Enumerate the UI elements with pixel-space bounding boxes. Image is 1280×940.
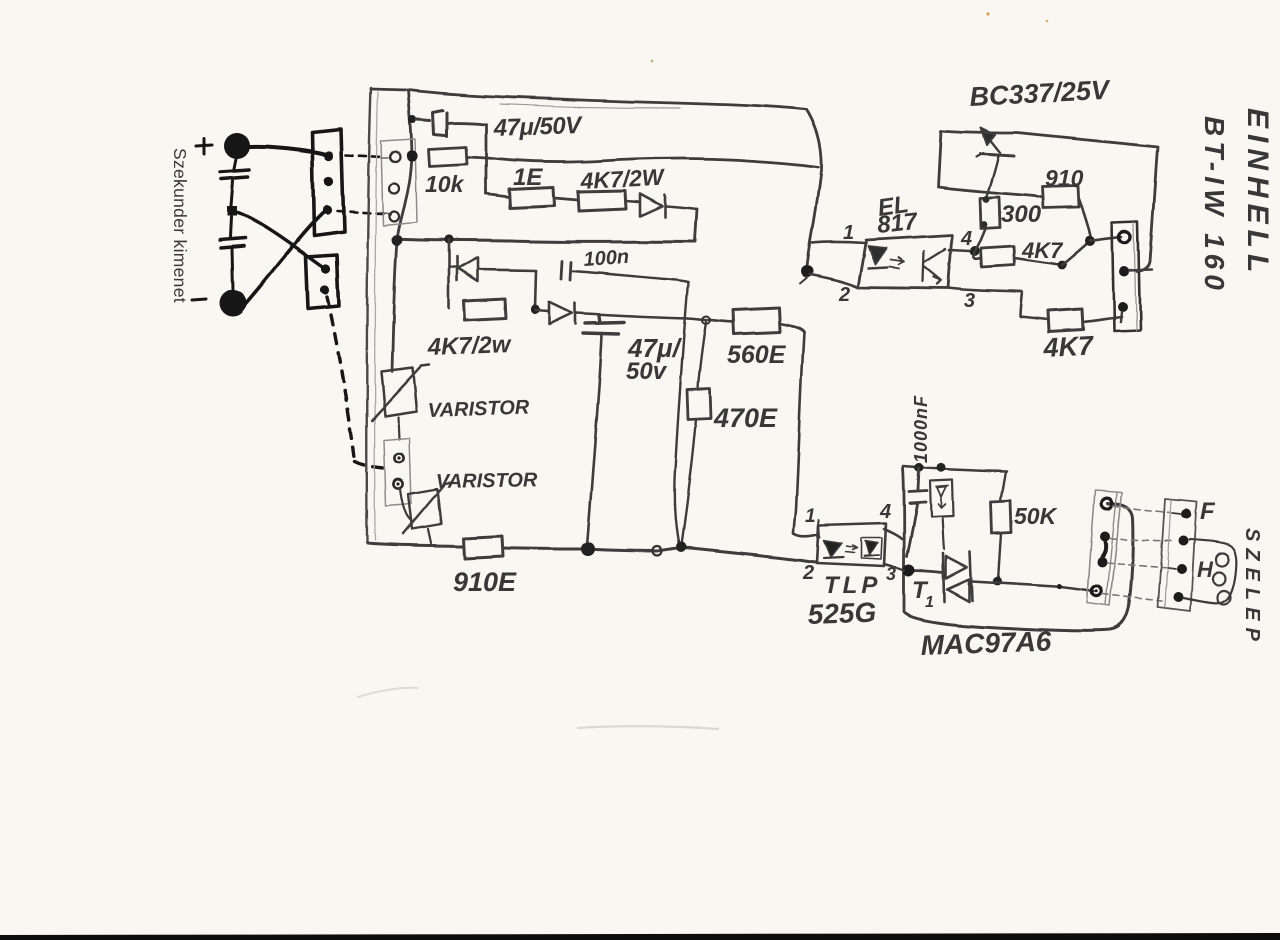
svg-text:4: 4 xyxy=(960,228,972,250)
svg-text:817: 817 xyxy=(876,208,920,239)
svg-text:910: 910 xyxy=(1045,165,1084,191)
svg-text:Szekunder kimenet: Szekunder kimenet xyxy=(170,148,190,303)
svg-text:100n: 100n xyxy=(583,246,630,271)
svg-text:1: 1 xyxy=(805,506,816,527)
svg-text:2: 2 xyxy=(802,562,814,584)
svg-text:EINHELL: EINHELL xyxy=(1241,108,1274,278)
svg-text:H: H xyxy=(1197,557,1214,582)
svg-text:4: 4 xyxy=(879,501,891,523)
svg-text:10k: 10k xyxy=(425,171,465,197)
svg-text:TLP: TLP xyxy=(824,572,881,599)
svg-text:SZELEP: SZELEP xyxy=(1241,528,1263,648)
svg-text:1000nF: 1000nF xyxy=(911,395,931,463)
svg-text:4K7/2w: 4K7/2w xyxy=(426,331,512,361)
svg-text:BT-IW 160: BT-IW 160 xyxy=(1199,116,1230,295)
svg-text:47μ/50V: 47μ/50V xyxy=(492,112,583,142)
svg-text:300: 300 xyxy=(1001,201,1042,228)
svg-text:1: 1 xyxy=(843,222,854,244)
svg-text:910E: 910E xyxy=(453,567,517,597)
svg-text:VARISTOR: VARISTOR xyxy=(436,469,538,493)
svg-text:4K7/2W: 4K7/2W xyxy=(579,164,667,194)
svg-text:MAC97A6: MAC97A6 xyxy=(920,625,1052,661)
svg-text:4K7: 4K7 xyxy=(1021,238,1064,263)
svg-text:4K7: 4K7 xyxy=(1042,330,1096,363)
svg-text:1: 1 xyxy=(925,594,934,611)
svg-text:3: 3 xyxy=(886,564,896,584)
svg-text:VARISTOR: VARISTOR xyxy=(427,396,530,422)
svg-text:560E: 560E xyxy=(727,341,787,369)
svg-text:50K: 50K xyxy=(1014,503,1058,529)
svg-text:3: 3 xyxy=(964,290,975,312)
svg-text:525G: 525G xyxy=(807,597,877,630)
svg-text:1E: 1E xyxy=(513,164,543,191)
svg-text:2: 2 xyxy=(838,284,850,306)
svg-text:470E: 470E xyxy=(713,403,778,433)
svg-text:F: F xyxy=(1200,498,1216,525)
svg-text:50v: 50v xyxy=(626,358,668,385)
